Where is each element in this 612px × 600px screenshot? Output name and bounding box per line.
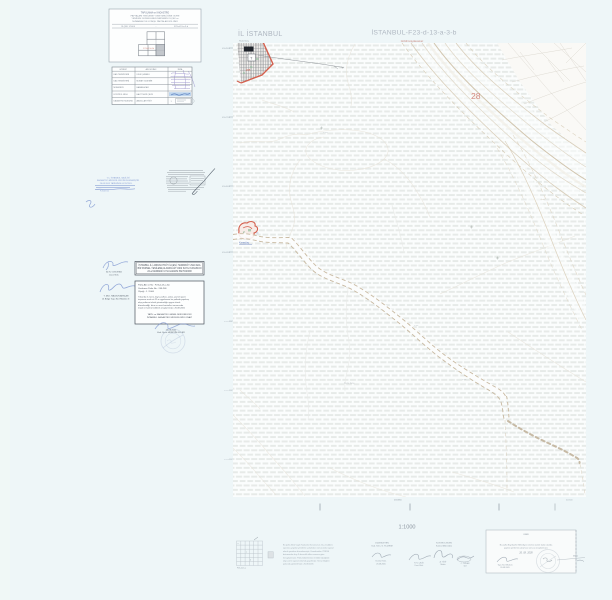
svg-text:4564300: 4564300 (224, 321, 233, 323)
svg-text:ÖLÇEK 1/1000: ÖLÇEK 1/1000 (121, 25, 136, 28)
svg-text:22-a MADDESİ UYGULAMASI PAFTAS: 22-a MADDESİ UYGULAMASI PAFTASIDIR (147, 270, 192, 273)
svg-text:Y. Müh. HALDUN ARSLAN: Y. Müh. HALDUN ARSLAN (104, 295, 129, 298)
svg-text:b: b (250, 560, 251, 562)
svg-text:TEM: TEM (540, 199, 545, 201)
svg-text:F23d13a3b: F23d13a3b (143, 48, 155, 50)
svg-text:1:1000: 1:1000 (398, 525, 415, 531)
svg-text:F23-d-13-a-3-b: F23-d-13-a-3-b (174, 26, 189, 28)
svg-text:YENİDEN DÜZENLENEN PAFTANIN ÖL: YENİDEN DÜZENLENEN PAFTANIN ÖLÇEK ve (131, 17, 179, 20)
svg-text:26.08.2005: 26.08.2005 (376, 563, 385, 565)
svg-text:GÖREVİ: GÖREVİ (119, 68, 127, 71)
svg-text:Ali N. ÖZBURAN: Ali N. ÖZBURAN (106, 271, 122, 274)
svg-text:Bu pafta 3402 sayılı Kadastro: Bu pafta 3402 sayılı Kadastro Kanununun … (283, 544, 333, 547)
svg-text:4564900: 4564900 (222, 48, 231, 50)
svg-text:Gizlidir kopyalanamaz: Gizlidir kopyalanamaz (401, 40, 424, 43)
svg-text:olarak yeniden düzenlenmiştir.: olarak yeniden düzenlenmiştir. Koordinat… (283, 550, 330, 553)
svg-text:İL İSTANBUL: İL İSTANBUL (238, 29, 283, 38)
svg-text:ONAY: ONAY (523, 533, 529, 536)
svg-text:x: x (246, 551, 247, 553)
svg-text:Yukarıda ili, ilçesi, köyü, pa: Yukarıda ili, ilçesi, köyü, paftası, ada… (138, 295, 186, 298)
svg-text:205: 205 (246, 68, 251, 72)
svg-text:Karaağaç: Karaağaç (239, 242, 250, 245)
svg-text:KAD.TEKNİSYENİ: KAD.TEKNİSYENİ (114, 73, 130, 76)
svg-text:Jeod. Müh.: Jeod. Müh. (109, 274, 120, 276)
svg-text:hesaplanmıştır. Pafta bölümlem: hesaplanmıştır. Pafta bölümlemesi 1/1000… (283, 556, 330, 559)
svg-text:Kad. Tekn. S. YILDIRIM: Kad. Tekn. S. YILDIRIM (371, 545, 392, 547)
svg-text:Y-28: Y-28 (323, 132, 328, 134)
svg-text:PAFTALARI YENİLEME YÖNETMELİĞİ: PAFTALARI YENİLEME YÖNETMELİĞİNE GÖRE (131, 14, 180, 17)
svg-text:olup çizim sayısal ortamda yap: olup çizim sayısal ortamda yapılmıştır. … (283, 560, 330, 563)
svg-text:Bu pafta Büyükşehir Belediyesi: Bu pafta Büyükşehir Belediyesi sınırları… (500, 544, 553, 547)
svg-text:HALİT NURİ ÇELİK: HALİT NURİ ÇELİK (137, 93, 154, 96)
svg-text:KADASTRO MÜDÜRLÜĞÜ İNCELENMİŞT: KADASTRO MÜDÜRLÜĞÜ İNCELENMİŞTİR (97, 179, 140, 182)
svg-text:424500: 424500 (566, 500, 574, 502)
svg-text:Tapu Sicil Müdürü: Tapu Sicil Müdürü (497, 564, 512, 567)
svg-text:İSTANBUL-F23-d-13-a-3-b: İSTANBUL-F23-d-13-a-3-b (371, 28, 456, 37)
svg-text:a: a (238, 543, 239, 545)
svg-text:Mühür: Mühür (573, 556, 578, 558)
svg-text:İSTANBUL KADASTRO MÜDÜRLÜĞÜ ON: İSTANBUL KADASTRO MÜDÜRLÜĞÜ ONAYI (147, 316, 193, 319)
svg-text:Pafta Adı ve No : F23-d-13-a-3: Pafta Adı ve No : F23-d-13-a-3-b (138, 284, 171, 287)
svg-text:Hadımköy: Hadımköy (239, 41, 250, 43)
svg-text:28: 28 (471, 91, 481, 101)
svg-text:4563850: 4563850 (394, 500, 403, 502)
svg-text:Ölçeği : 1 / 1000: Ölçeği : 1 / 1000 (138, 290, 155, 293)
svg-text:Kuru dere: Kuru dere (344, 382, 355, 385)
svg-text:4564450: 4564450 (222, 252, 231, 254)
svg-text:HAKAN ACAR: HAKAN ACAR (137, 86, 150, 89)
svg-text:ADI SOYADI: ADI SOYADI (146, 68, 157, 71)
svg-text:taşınmaz mala ait 22-a uygulam: taşınmaz mala ait 22-a uygulaması bu paf… (138, 298, 189, 301)
svg-text:KADASTRO MÜDÜRÜ: KADASTRO MÜDÜRÜ (114, 100, 134, 103)
svg-text:yukarıda gösterilmiştir. 26.08: yukarıda gösterilmiştir. 26.08.2005 (283, 563, 314, 566)
svg-text:datumunda olup 3 derecelik dil: datumunda olup 3 derecelik dilim esasına… (283, 553, 325, 556)
svg-text:düzenlendiği, büro ve arazi ko: düzenlendiği, büro ve arazi kontrolleri … (138, 304, 184, 307)
svg-text:MÜHENDİS: MÜHENDİS (114, 86, 125, 89)
svg-text:4564600: 4564600 (222, 186, 231, 188)
svg-text:F23-d-13-a: F23-d-13-a (237, 568, 246, 570)
svg-text:F.2005/11: F.2005/11 (100, 191, 110, 193)
svg-text:4564000: 4564000 (224, 459, 233, 461)
svg-text:A. Bölge Tapu Sicil Müdürü V.: A. Bölge Tapu Sicil Müdürü V. (102, 297, 130, 300)
svg-text:yapılan yenileme çalışması son: yapılan yenileme çalışması sonucu onayla… (504, 547, 548, 550)
svg-text:Kont. Müh.: Kont. Müh. (415, 564, 424, 567)
svg-text:Kontrol Tekn.: Kontrol Tekn. (376, 560, 387, 563)
svg-text:tespit ve kontrol edilerek ona: tespit ve kontrol edilerek onaylanmıştır… (138, 307, 186, 310)
svg-text:TAPU ve KADASTRO GENEL MÜDÜRLÜ: TAPU ve KADASTRO GENEL MÜDÜRLÜĞÜ (148, 313, 192, 316)
svg-text:MURAT ÖZDEMİR: MURAT ÖZDEMİR (137, 80, 153, 83)
svg-text:T.C. İSTANBUL VALİLİĞİ: T.C. İSTANBUL VALİLİĞİ (106, 177, 129, 180)
svg-text:ABDULLAH YİĞİT: ABDULLAH YİĞİT (137, 100, 153, 103)
svg-text:Yenilenen Pafta No : 245-246: Yenilenen Pafta No : 245-246 (138, 287, 167, 290)
svg-text:İSTANBUL İLİ, ARNAVUTKÖY İLÇES: İSTANBUL İLİ, ARNAVUTKÖY İLÇESİ, HADIMKÖ… (138, 264, 201, 267)
svg-text:26. 08. 2005: 26. 08. 2005 (518, 552, 533, 555)
svg-text:KONTROL MÜH.: KONTROL MÜH. (114, 93, 129, 96)
svg-text:olup paftanın teknik yönetmeli: olup paftanın teknik yönetmeliğe uygun o… (138, 301, 181, 304)
svg-text:KAD.TEKNİSYENİ: KAD.TEKNİSYENİ (114, 80, 130, 83)
svg-text:4564150: 4564150 (224, 390, 233, 392)
svg-text:BİR PARSEL YENİLEME ALANINA Aİ: BİR PARSEL YENİLEME ALANINA AİT 3402 SAY… (138, 267, 202, 270)
svg-text:NUMARASI İLE KOMŞU PAFTALAR BÖ: NUMARASI İLE KOMŞU PAFTALAR BÖLÜMÜ (132, 20, 178, 23)
svg-text:TAPULAMA ve KADASTRO: TAPULAMA ve KADASTRO (141, 12, 170, 15)
svg-text:İMZA: İMZA (178, 68, 183, 71)
svg-text:DÜZENLEYEN: DÜZENLEYEN (375, 542, 389, 545)
svg-text:Müdür: Müdür (440, 564, 445, 566)
svg-text:26.08.2005 TARİHİNDE KONTROL: 26.08.2005 TARİHİNDE KONTROL (100, 182, 133, 185)
svg-text:KONTROL EDEN: KONTROL EDEN (436, 543, 452, 545)
svg-text:bk: bk (257, 233, 259, 235)
svg-text:uyarınca yapılan yenileme çalı: uyarınca yapılan yenileme çalışmaları so… (283, 548, 334, 550)
svg-text:Kontrol Mühendisi: Kontrol Mühendisi (436, 544, 453, 547)
svg-text:26.08.2005: 26.08.2005 (500, 567, 509, 569)
svg-text:UFUK ÇATAKLI: UFUK ÇATAKLI (137, 73, 151, 76)
svg-text:4564750: 4564750 (222, 117, 231, 119)
